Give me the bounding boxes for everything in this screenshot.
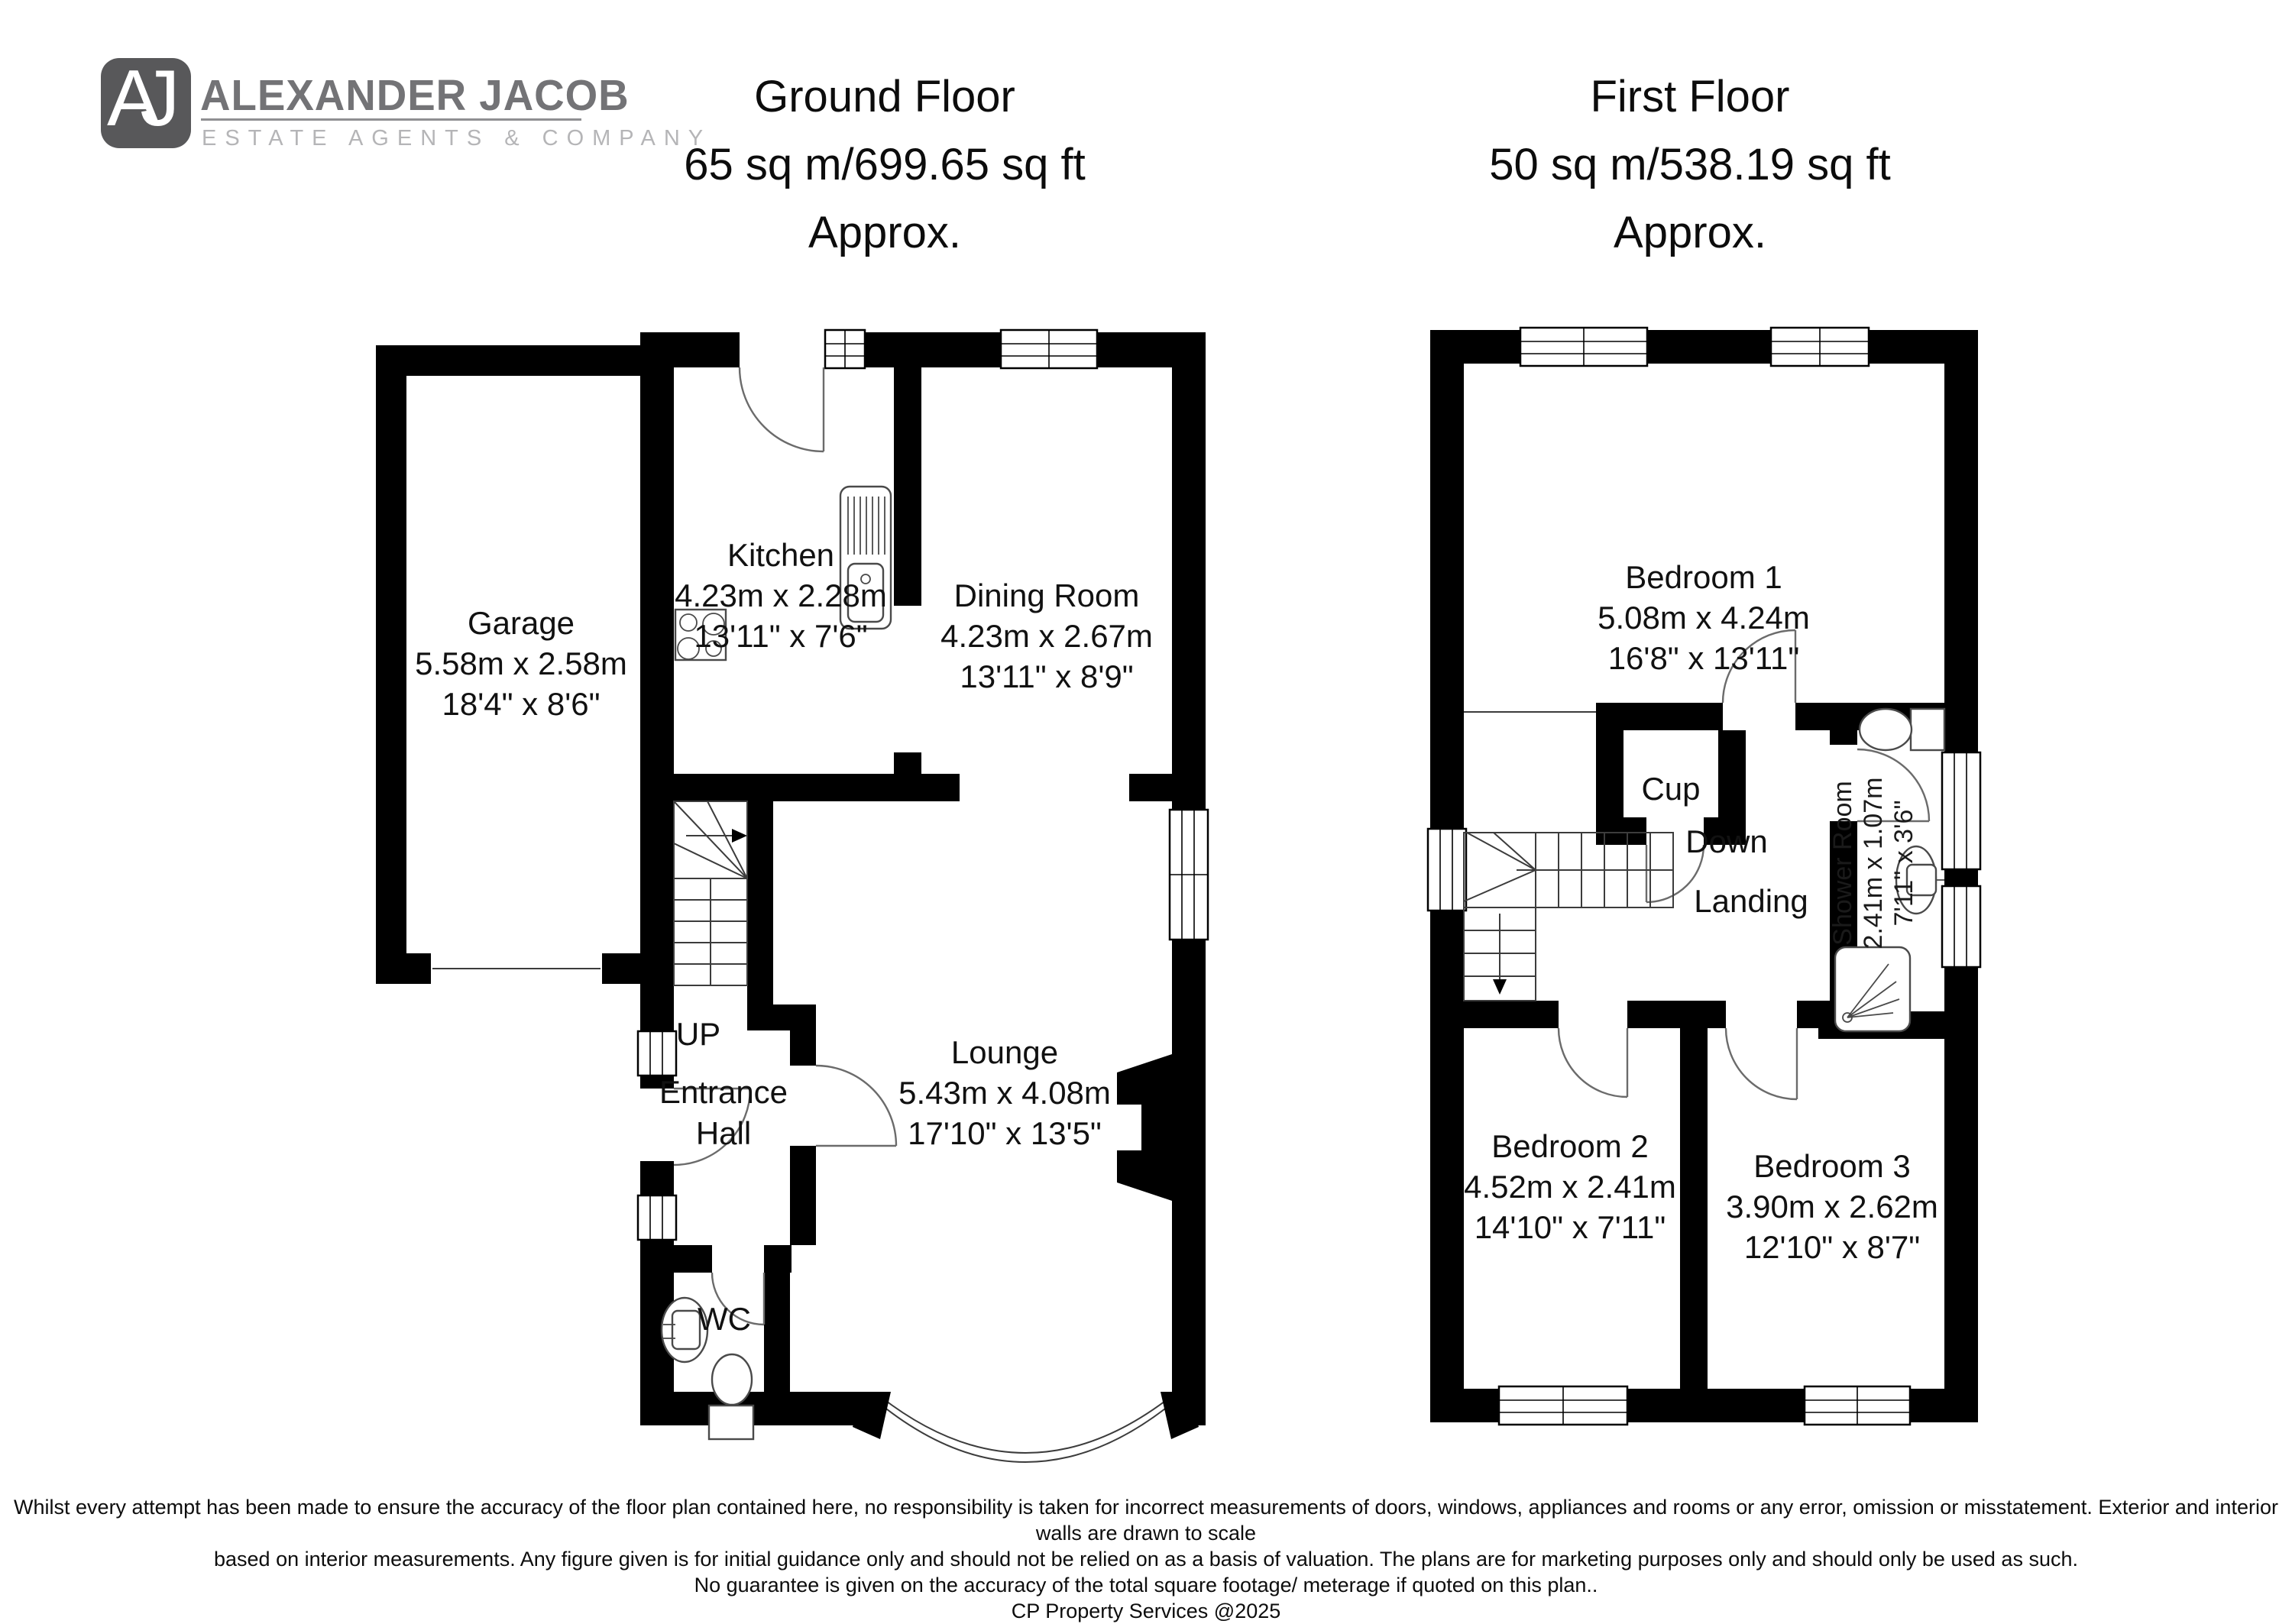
agency-logo-name: ALEXANDER JACOB xyxy=(200,70,630,121)
room-label-wc: WC xyxy=(698,1299,751,1339)
room-label-entrance-hall: Entrance Hall xyxy=(632,1072,815,1154)
chimney-breast xyxy=(1117,1054,1172,1201)
stairs-up xyxy=(674,801,747,985)
agency-logo-badge: AJ xyxy=(101,58,191,148)
room-label-bedroom3: Bedroom 3 3.90m x 2.62m 12'10" x 8'7" xyxy=(1726,1146,1938,1267)
toilet-icon xyxy=(1860,709,1944,750)
room-label-landing: Landing xyxy=(1694,881,1808,921)
ground-floor-title-line1: Ground Floor xyxy=(684,63,1086,131)
room-label-bedroom1: Bedroom 1 5.08m x 4.24m 16'8" x 13'11" xyxy=(1598,557,1810,678)
floorplan-page: { "logo": { "initials": "AJ", "name": "A… xyxy=(0,0,2292,1620)
first-floor-title: First Floor 50 sq m/538.19 sq ft Approx. xyxy=(1489,63,1891,267)
room-label-dining: Dining Room 4.23m x 2.67m 13'11" x 8'9" xyxy=(940,575,1153,697)
room-label-garage: Garage 5.58m x 2.58m 18'4" x 8'6" xyxy=(415,603,627,724)
room-label-cup: Cup xyxy=(1641,768,1700,809)
bay-window xyxy=(853,1392,1199,1462)
shower-tray-icon xyxy=(1835,947,1910,1031)
room-label-kitchen: Kitchen 4.23m x 2.28m 13'11" x 7'6" xyxy=(675,535,887,656)
disclaimer-line1: Whilst every attempt has been made to en… xyxy=(0,1494,2292,1546)
room-label-bedroom2: Bedroom 2 4.52m x 2.41m 14'10" x 7'11" xyxy=(1464,1126,1676,1247)
first-floor-title-line1: First Floor xyxy=(1489,63,1891,131)
disclaimer: Whilst every attempt has been made to en… xyxy=(0,1494,2292,1624)
agency-logo-divider xyxy=(201,118,581,121)
ground-floor-area: 65 sq m/699.65 sq ft xyxy=(684,131,1086,199)
first-floor-area: 50 sq m/538.19 sq ft xyxy=(1489,131,1891,199)
ground-floor-plan xyxy=(359,321,1322,1512)
label-down: Down xyxy=(1685,821,1767,862)
room-label-lounge: Lounge 5.43m x 4.08m 17'10" x 13'5" xyxy=(898,1032,1111,1153)
disclaimer-line3: No guarantee is given on the accuracy of… xyxy=(0,1572,2292,1598)
ground-floor-title: Ground Floor 65 sq m/699.65 sq ft Approx… xyxy=(684,63,1086,267)
label-up: UP xyxy=(676,1014,720,1054)
agency-logo-initials: AJ xyxy=(107,58,191,144)
first-floor-approx: Approx. xyxy=(1489,199,1891,267)
stairs-down xyxy=(1464,833,1673,1001)
ground-floor-approx: Approx. xyxy=(684,199,1086,267)
disclaimer-line2: based on interior measurements. Any figu… xyxy=(0,1546,2292,1572)
ground-floor-walls xyxy=(376,332,1206,1425)
agency-logo-tagline: ESTATE AGENTS & COMPANY xyxy=(202,126,711,151)
room-label-shower: Shower Room 2.41m x 1.07m 7'11" x 3'6" xyxy=(1827,778,1919,949)
